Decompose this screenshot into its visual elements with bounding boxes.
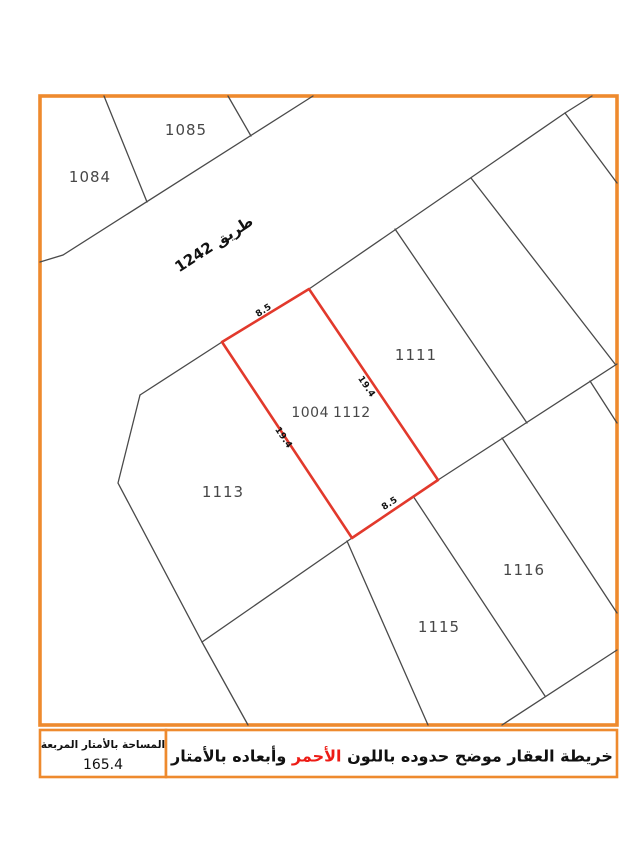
parcel-label-1116: 1116 <box>503 561 545 579</box>
parcel-label-1111: 1111 <box>395 346 437 364</box>
boundary-1111-east <box>395 229 527 423</box>
boundary-top-right-sliver <box>565 113 617 183</box>
road-south-edge-top-exit <box>565 96 592 113</box>
area-box-title: المساحة بالأمتار المربعة <box>41 739 165 751</box>
street-southeast-edge <box>502 650 617 725</box>
road-south-edge-right <box>309 113 565 289</box>
subject-parcel-label: 10041112 <box>291 405 370 421</box>
parcel-label-1115: 1115 <box>418 618 460 636</box>
boundary-1113-west <box>118 395 202 642</box>
subject-parcel-number: 1112 <box>333 405 371 421</box>
legend-text: خريطة العقار موضح حدوده باللون الأحمر وأ… <box>171 747 613 766</box>
boundary-1115-west <box>347 541 428 725</box>
parcel-label-1113: 1113 <box>202 483 244 501</box>
area-box-value: 165.4 <box>83 757 123 773</box>
legend-text-before: خريطة العقار موضح حدوده باللون <box>342 747 613 766</box>
boundary-1116-east <box>502 438 617 613</box>
rear-lane-left <box>202 538 352 642</box>
boundary-strip-east <box>590 381 617 423</box>
parcel-label-1085: 1085 <box>165 121 207 139</box>
boundary-1115-1116 <box>413 496 545 696</box>
boundary-strip-northeast <box>471 178 615 364</box>
boundary-1113-south-exit <box>202 642 248 725</box>
legend-highlight-word: الأحمر <box>292 747 342 766</box>
road-south-edge-left <box>140 342 222 395</box>
parcel-map-canvas <box>0 0 628 863</box>
legend-text-after: وأبعاده بالأمتار <box>171 747 292 766</box>
subject-block-number: 1004 <box>291 405 329 421</box>
parcel-label-1084: 1084 <box>69 168 111 186</box>
cadastral-map-page: 1084 1085 1111 1113 1115 1116 10041112 ط… <box>0 0 628 863</box>
boundary-1084-1085 <box>104 96 147 202</box>
boundary-1085-east <box>228 96 251 136</box>
